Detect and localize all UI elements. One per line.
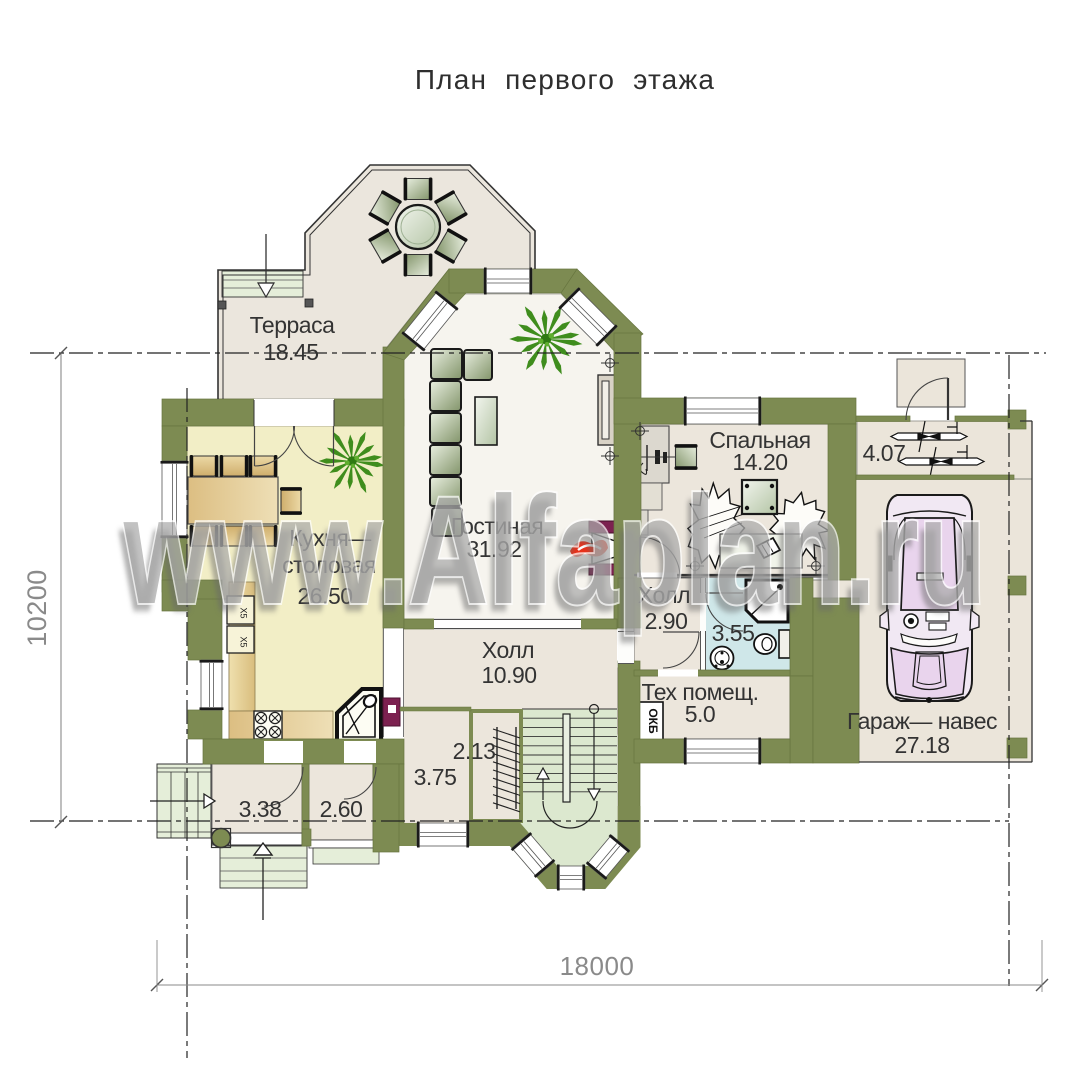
- svg-text:18000: 18000: [560, 951, 635, 981]
- svg-text:Гараж— навес: Гараж— навес: [847, 708, 997, 734]
- svg-text:2.60: 2.60: [320, 796, 363, 822]
- svg-text:18.45: 18.45: [263, 339, 318, 365]
- svg-text:4.07: 4.07: [863, 440, 906, 466]
- svg-text:2.13: 2.13: [453, 738, 496, 764]
- svg-text:3.38: 3.38: [239, 796, 282, 822]
- svg-text:www.Alfaplan.ru: www.Alfaplan.ru: [123, 465, 986, 636]
- svg-text:Терраса: Терраса: [250, 312, 335, 338]
- svg-text:План первого этажа: План первого этажа: [415, 64, 715, 95]
- svg-text:27.18: 27.18: [894, 732, 949, 758]
- svg-text:3.75: 3.75: [414, 764, 457, 790]
- svg-text:ОКБ: ОКБ: [646, 708, 660, 734]
- svg-text:10.90: 10.90: [481, 662, 536, 688]
- svg-text:5.0: 5.0: [685, 701, 715, 727]
- svg-text:10200: 10200: [22, 569, 52, 647]
